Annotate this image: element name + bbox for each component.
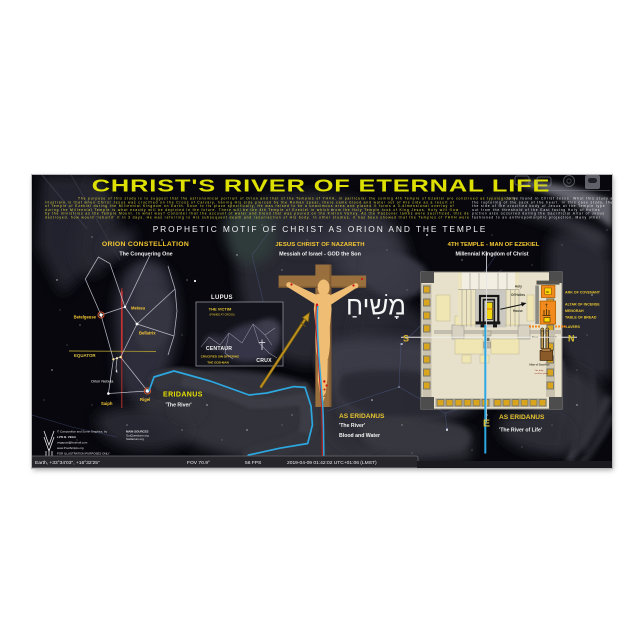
svg-text:2019-04-09 01:42:02 UTC+01:06: 2019-04-09 01:42:02 UTC+01:06 (LMST): [287, 460, 377, 466]
svg-text:Meissa: Meissa: [131, 306, 146, 311]
svg-text:CRUX: CRUX: [256, 358, 272, 364]
svg-text:'The River': 'The River': [339, 423, 365, 429]
svg-text:The daily: The daily: [535, 370, 545, 372]
svg-text:†: †: [545, 304, 548, 310]
svg-text:S: S: [403, 334, 409, 344]
svg-text:MENORAH: MENORAH: [565, 309, 584, 313]
svg-text:ERIDANUS: ERIDANUS: [163, 392, 203, 399]
svg-text:www.PostScripts.org: www.PostScripts.org: [57, 446, 84, 450]
svg-text:destroyed, how would 'rebuild': destroyed, how would 'rebuild' it in 3 d…: [45, 216, 470, 220]
svg-text:fashioned to an anthropomorphi: fashioned to an anthropomorphic projecti…: [472, 216, 601, 220]
svg-text:Millennial Kingdom of Christ: Millennial Kingdom of Christ: [455, 252, 528, 258]
svg-text:Saiph: Saiph: [101, 401, 113, 406]
svg-text:LUPUS: LUPUS: [211, 295, 233, 301]
svg-text:House: House: [513, 309, 523, 313]
svg-text:(PINNED AT CROSS): (PINNED AT CROSS): [209, 313, 234, 317]
svg-text:N: N: [568, 334, 575, 344]
svg-text:E: E: [483, 418, 490, 430]
svg-text:LAVERS: LAVERS: [566, 325, 581, 329]
svg-text:CENTAUR: CENTAUR: [206, 346, 232, 352]
svg-text:Stellarium.org: Stellarium.org: [126, 437, 144, 441]
svg-text:TABLE OF BREAD: TABLE OF BREAD: [565, 315, 597, 319]
svg-text:sacrifice place: sacrifice place: [535, 372, 550, 375]
svg-text:FOV 70.9°: FOV 70.9°: [187, 460, 210, 466]
svg-text:ARK OF COVENANT: ARK OF COVENANT: [565, 291, 601, 295]
svg-text:The Conquering One: The Conquering One: [119, 252, 172, 258]
svg-text:© Composition and Some Graphic: © Composition and Some Graphics, by: [57, 430, 108, 434]
svg-text:CRUCIFIED SIN OFFERING: CRUCIFIED SIN OFFERING: [201, 355, 240, 359]
svg-text:LУIS B. VEGA: LУIS B. VEGA: [57, 435, 77, 439]
svg-text:CHRIST'S RIVER OF ETERNAL LIFE: CHRIST'S RIVER OF ETERNAL LIFE: [92, 175, 551, 195]
svg-text:4TH TEMPLE - MAN OF EZEKIEL: 4TH TEMPLE - MAN OF EZEKIEL: [448, 242, 540, 248]
svg-text:מָשִׁיחַ: מָשִׁיחַ: [346, 291, 406, 321]
svg-text:THE GOD-MAN: THE GOD-MAN: [207, 361, 229, 365]
svg-text:FOR ILLUSTRATION PURPOSES ONLY: FOR ILLUSTRATION PURPOSES ONLY: [57, 452, 110, 456]
svg-text:EQUATOR: EQUATOR: [74, 353, 96, 358]
svg-text:Altar of Sacrifice: Altar of Sacrifice: [529, 363, 550, 367]
svg-text:ALTAR OF INCENSE: ALTAR OF INCENSE: [565, 302, 600, 306]
svg-text:Rigel: Rigel: [140, 397, 150, 402]
svg-text:AS ERIDANUS: AS ERIDANUS: [499, 414, 545, 421]
svg-text:THE VICTIM: THE VICTIM: [209, 307, 232, 312]
svg-text:'The River': 'The River': [166, 403, 192, 409]
svg-text:JESUS CHRIST OF NAZARETH: JESUS CHRIST OF NAZARETH: [275, 242, 364, 248]
svg-text:Messiah of Israel - GOD the So: Messiah of Israel - GOD the Son: [279, 252, 361, 258]
svg-text:Of Holies: Of Holies: [511, 293, 525, 297]
svg-text:vegapost@hotmail.com: vegapost@hotmail.com: [57, 441, 88, 445]
svg-text:AS ERIDANUS: AS ERIDANUS: [339, 413, 385, 420]
svg-text:Bellatrix: Bellatrix: [139, 331, 156, 336]
svg-text:ORION CONSTELLATION: ORION CONSTELLATION: [102, 241, 189, 248]
svg-text:Earth, +33°34'03", +16°32'25": Earth, +33°34'03", +16°32'25": [35, 460, 100, 466]
svg-text:Blood and Water: Blood and Water: [339, 433, 380, 439]
svg-text:Orion Nebula: Orion Nebula: [91, 380, 114, 384]
svg-text:'The River of Life': 'The River of Life': [499, 428, 542, 434]
svg-text:PROPHETIC MOTIF OF CHRIST AS O: PROPHETIC MOTIF OF CHRIST AS ORION AND T…: [153, 224, 488, 234]
svg-text:56 FPS: 56 FPS: [245, 460, 262, 466]
svg-text:Holy: Holy: [515, 285, 522, 289]
svg-text:Betelgeuse: Betelgeuse: [74, 315, 97, 320]
